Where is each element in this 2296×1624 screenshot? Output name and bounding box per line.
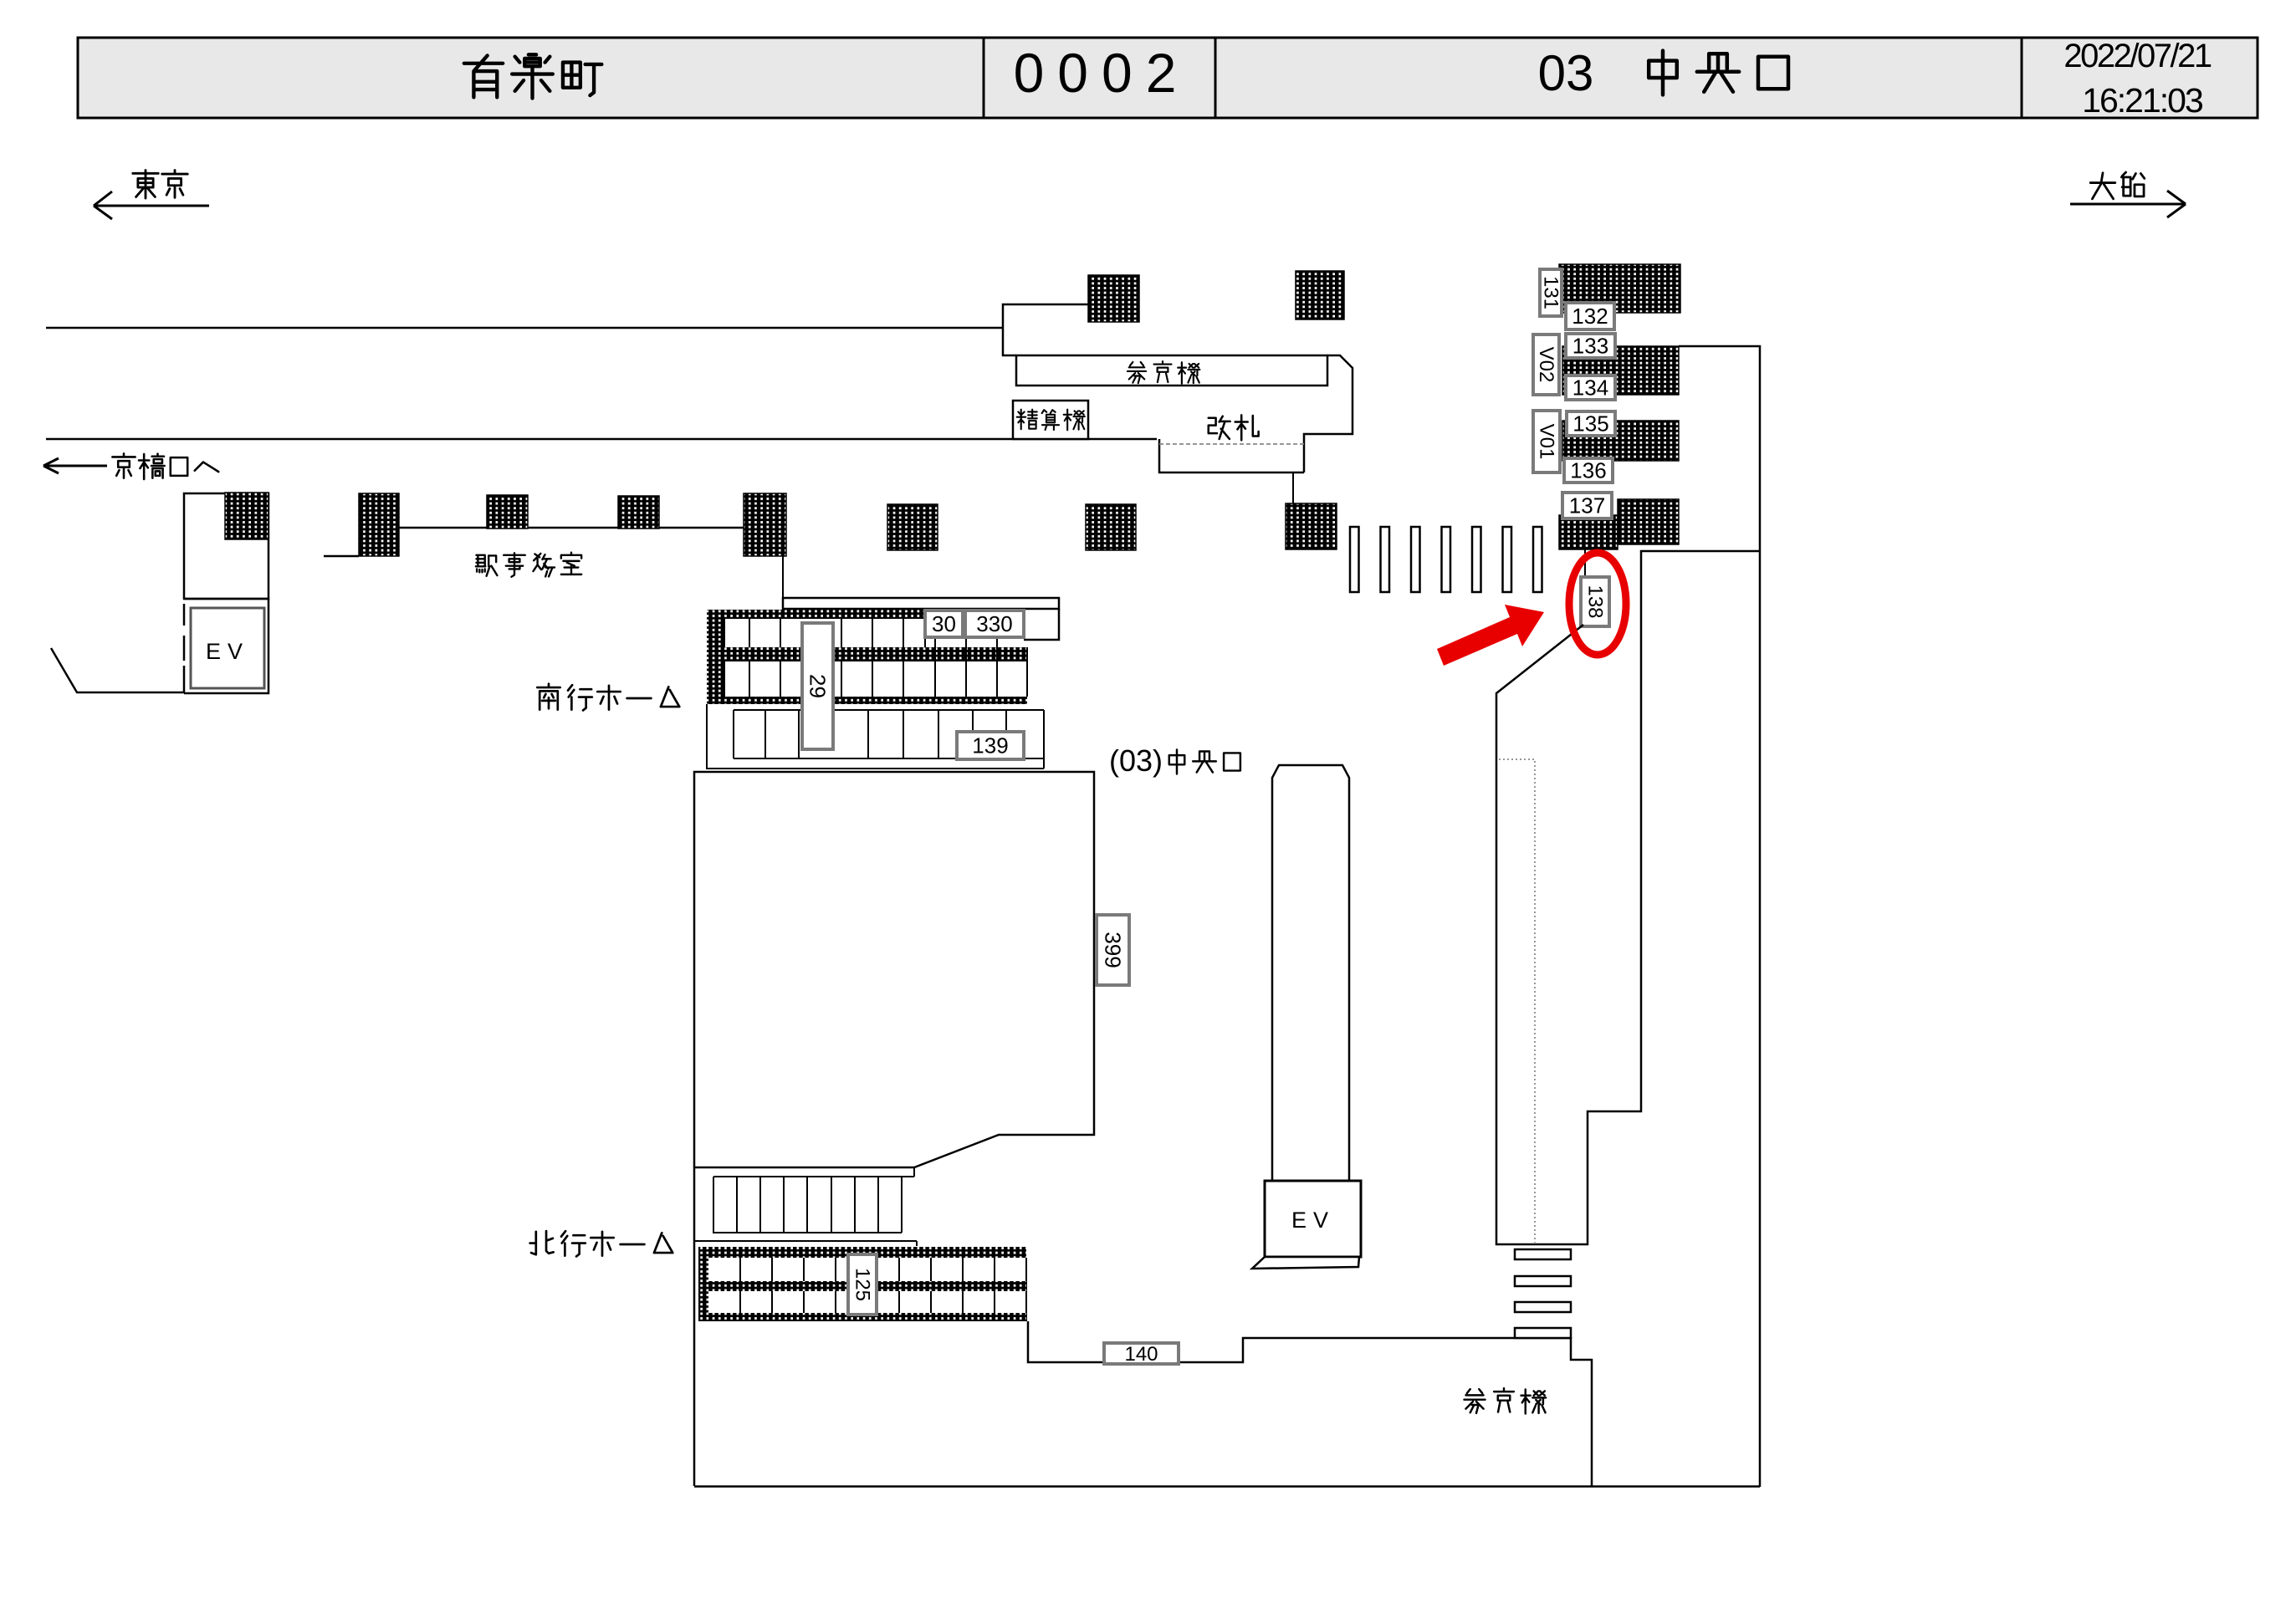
svg-text:30: 30: [932, 611, 956, 636]
svg-text:399: 399: [1101, 932, 1126, 968]
svg-text:140: 140: [1124, 1343, 1158, 1366]
svg-text:0002: 0002: [1014, 42, 1190, 104]
svg-text:134: 134: [1572, 375, 1608, 401]
svg-text:29: 29: [805, 674, 831, 698]
svg-text:EV: EV: [206, 639, 249, 664]
svg-text:135: 135: [1572, 411, 1608, 437]
svg-text:139: 139: [972, 733, 1008, 758]
svg-text:132: 132: [1572, 304, 1608, 329]
svg-text:16:21:03: 16:21:03: [2082, 81, 2202, 120]
svg-text:(03): (03): [1109, 743, 1163, 778]
svg-text:EV: EV: [1291, 1208, 1335, 1233]
svg-text:137: 137: [1569, 493, 1605, 518]
svg-text:V02: V02: [1535, 347, 1557, 383]
svg-text:125: 125: [851, 1268, 874, 1301]
svg-text:2022/07/21: 2022/07/21: [2063, 38, 2211, 74]
svg-text:133: 133: [1572, 334, 1608, 359]
svg-text:131: 131: [1540, 276, 1562, 309]
svg-text:03: 03: [1538, 45, 1594, 101]
svg-text:138: 138: [1584, 585, 1607, 618]
svg-text:V01: V01: [1536, 424, 1558, 460]
svg-text:330: 330: [976, 611, 1012, 636]
svg-text:136: 136: [1570, 458, 1606, 483]
